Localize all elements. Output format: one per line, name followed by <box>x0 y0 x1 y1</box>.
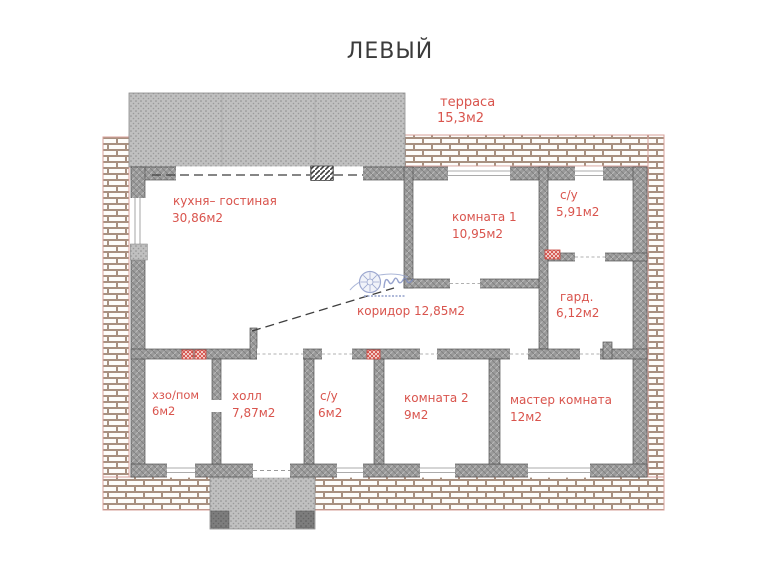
label-wardrobe-area: 6,12м2 <box>556 306 599 320</box>
wall-bottom-row <box>131 349 647 359</box>
vent-bath2 <box>367 350 380 359</box>
label-bath1-area: 5,91м2 <box>556 205 599 219</box>
brick-border-bottom <box>103 477 664 510</box>
chimney-hatch <box>311 166 333 181</box>
door-room1 <box>450 278 480 288</box>
terrace-door-opening <box>176 166 310 180</box>
terrace-area <box>129 93 405 167</box>
label-master-area: 12м2 <box>510 410 542 424</box>
window-kitchen-left <box>130 198 147 260</box>
wall-kitchen-stub <box>250 328 257 359</box>
window-bath1 <box>575 166 603 180</box>
label-corridor-name: коридор <box>357 304 410 318</box>
wall-bath2-room2 <box>374 359 384 464</box>
window-room2 <box>420 463 455 477</box>
label-kitchen-name: кухня– гостиная <box>173 194 277 208</box>
page-title: ЛЕВЫЙ <box>347 38 433 64</box>
label-room2-name: комната 2 <box>404 391 469 405</box>
terrace-opening-2 <box>334 166 363 180</box>
brick-border-left <box>103 137 129 510</box>
wall-right <box>633 167 647 477</box>
label-utility-area: 6м2 <box>152 404 175 418</box>
wall-room2-master <box>489 359 500 464</box>
brick-border-right <box>648 135 664 510</box>
wall-kitchen-room1 <box>404 167 413 288</box>
label-master-name: мастер комната <box>510 393 612 407</box>
entrance-door <box>253 463 290 477</box>
label-room1-area: 10,95м2 <box>452 227 503 241</box>
door-utility <box>211 400 221 412</box>
label-room2-area: 9м2 <box>404 408 428 422</box>
label-utility-name: хзо/пом <box>152 388 199 402</box>
window-master <box>528 463 590 477</box>
porch-step-left <box>211 511 229 528</box>
floor-plan-page: ЛЕВЫЙ <box>0 0 780 580</box>
label-bath2-name: с/у <box>320 389 338 403</box>
label-terrace-name: терраса <box>440 95 495 110</box>
porch-area <box>210 477 315 529</box>
label-hall-area: 7,87м2 <box>232 406 275 420</box>
label-corridor-area: 12,85м2 <box>414 304 465 318</box>
porch-step-right <box>296 511 314 528</box>
wall-wardrobe-stub <box>603 342 612 359</box>
label-kitchen-area: 30,86м2 <box>172 211 223 225</box>
floor-plan-drawing: ЛЕВЫЙ <box>0 0 780 580</box>
label-terrace-area: 15,3м2 <box>437 111 484 126</box>
vent-kitchen-1 <box>182 350 193 359</box>
vent-kitchen-2 <box>195 350 206 359</box>
label-bath1-name: с/у <box>560 188 578 202</box>
door-bath1 <box>575 252 605 261</box>
label-wardrobe-name: гард. <box>560 290 593 304</box>
label-hall-name: холл <box>232 389 262 403</box>
label-room1-name: комната 1 <box>452 210 517 224</box>
vent-bath1 <box>545 250 560 259</box>
window-room1 <box>448 166 510 180</box>
label-bath2-area: 6м2 <box>318 406 342 420</box>
window-utility <box>167 463 195 477</box>
door-bath2 <box>322 348 352 359</box>
window-bath2 <box>337 463 363 477</box>
wall-hall-bath2 <box>304 359 314 464</box>
